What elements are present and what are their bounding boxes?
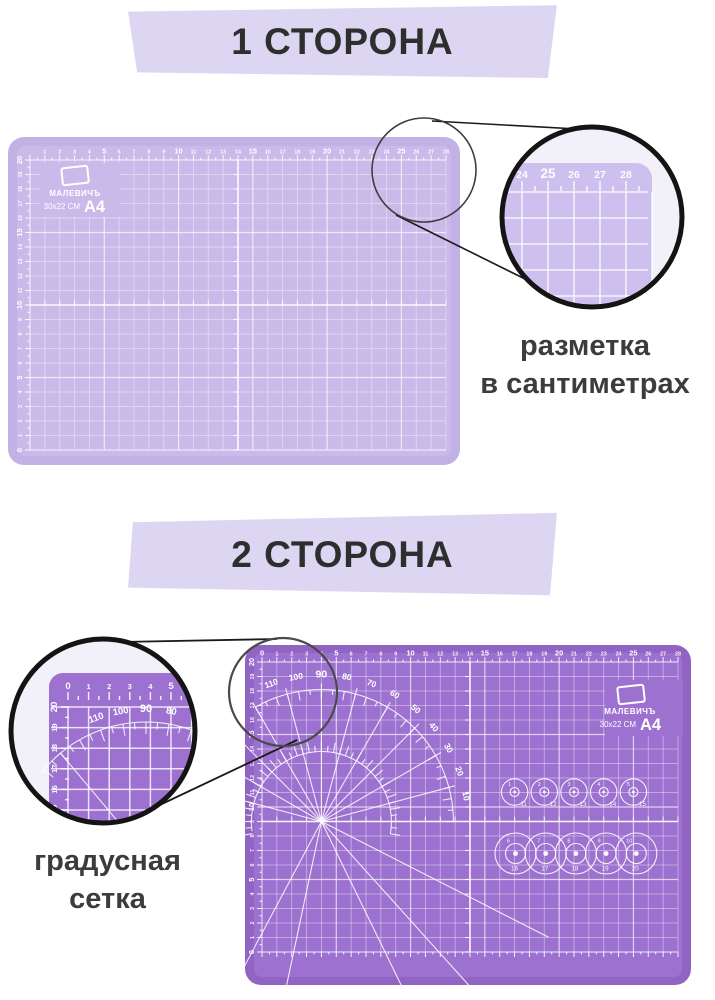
circle-label: 12 [550, 801, 558, 808]
side-2-banner: 2 СТОРОНА [125, 512, 560, 597]
ruler-number: 2 [290, 652, 293, 658]
ruler-number: 18 [250, 688, 256, 694]
lens-ruler-number: 24 [516, 169, 528, 181]
mat-side-2: 110100908070605040302010 111212313414515… [176, 645, 691, 1000]
ruler-number: 9 [394, 652, 397, 658]
ruler-number: 14 [235, 150, 241, 156]
target-dot [602, 791, 605, 794]
target-dot [513, 791, 516, 794]
circle-label: 13 [579, 801, 587, 808]
protractor-tick [391, 815, 397, 816]
ruler-number: 10 [174, 147, 182, 156]
ruler-number: 17 [280, 150, 286, 156]
ruler-number: 20 [247, 658, 256, 666]
ruler-number: 28 [675, 652, 681, 658]
caption-line: градусная [0, 842, 215, 880]
caption-line: разметка [450, 327, 715, 365]
circle-label: 16 [511, 866, 519, 873]
ruler-number: 23 [601, 652, 607, 658]
ruler-number: 9 [18, 318, 24, 321]
ruler-number: 21 [571, 652, 577, 658]
ruler-number: 26 [645, 652, 651, 658]
lens-ruler-number: 25 [540, 166, 556, 181]
lens-ruler-number: 26 [568, 169, 580, 181]
circle-inner-number: 6 [507, 839, 510, 845]
ruler-number: 7 [18, 347, 24, 350]
ruler-number: 4 [18, 391, 24, 394]
ruler-number: 28 [443, 150, 449, 156]
ruler-number: 21 [339, 150, 345, 156]
target-dot [513, 851, 518, 856]
ruler-number: 13 [18, 259, 24, 265]
ruler-number: 15 [15, 228, 24, 236]
ruler-number: 11 [191, 150, 197, 156]
ruler-number: 13 [220, 150, 226, 156]
ruler-number: 12 [205, 150, 211, 156]
ruler-number: 24 [384, 150, 390, 156]
lens2-content: 0123452019181716151101009080 [41, 673, 229, 855]
ruler-number: 16 [497, 652, 503, 658]
circle-label: 11 [520, 801, 527, 808]
mat1-format: А4 [84, 198, 106, 216]
degree-label: 10 [460, 790, 472, 801]
ruler-number: 6 [350, 652, 353, 658]
ruler-number: 11 [18, 288, 24, 294]
caption-degree-grid: градусная сетка [0, 842, 215, 918]
ruler-number: 11 [423, 652, 429, 658]
ruler-number: 12 [437, 652, 443, 658]
ruler-number: 10 [247, 803, 256, 811]
protractor-tick [207, 740, 213, 750]
caption-cm-markings: разметка в сантиметрах [450, 327, 715, 403]
circle-inner-number: 10 [626, 839, 632, 845]
circle-label: 19 [602, 866, 610, 873]
ruler-number: 17 [512, 652, 518, 658]
ruler-number: 20 [323, 147, 331, 156]
ruler-number: 27 [660, 652, 666, 658]
ruler-number: 15 [249, 147, 257, 156]
ruler-number: 0 [247, 950, 256, 954]
protractor-tick [134, 723, 135, 730]
lens-ruler-number: 20 [49, 702, 60, 713]
ruler-number: 5 [15, 375, 24, 379]
caption-line: сетка [0, 880, 215, 918]
ruler-number: 0 [15, 448, 24, 452]
mat1-brand: МАЛЕВИЧЪ [49, 189, 101, 198]
ruler-number: 2 [58, 150, 61, 156]
ruler-number: 19 [250, 674, 256, 680]
target-dot [574, 851, 579, 856]
protractor-tick [328, 746, 329, 752]
target-dot [573, 791, 576, 794]
lens-ruler-number: 17 [50, 765, 59, 773]
ruler-number: 1 [250, 936, 256, 939]
circle-label: 15 [639, 801, 647, 808]
ruler-number: 12 [250, 775, 256, 781]
ruler-number: 5 [247, 877, 256, 881]
ruler-number: 14 [18, 244, 24, 250]
ruler-number: 1 [43, 150, 46, 156]
circle-inner-number: 5 [627, 782, 630, 788]
ruler-number: 6 [250, 864, 256, 867]
ruler-number: 8 [250, 835, 256, 838]
mat2-format: А4 [640, 716, 662, 734]
ruler-number: 8 [379, 652, 382, 658]
protractor-tick [315, 746, 316, 752]
ruler-number: 20 [15, 156, 24, 164]
lens1-content: 2425262728 [470, 163, 652, 348]
circle-inner-number: 9 [598, 839, 601, 845]
protractor-tick [246, 815, 252, 816]
ruler-number: 25 [397, 147, 405, 156]
side-1-banner: 1 СТОРОНА [125, 2, 560, 82]
ruler-number: 14 [250, 746, 256, 752]
ruler-number: 8 [147, 150, 150, 156]
ruler-number: 19 [18, 172, 24, 178]
ruler-number: 19 [541, 652, 547, 658]
caption-line: в сантиметрах [450, 365, 715, 403]
ruler-number: 13 [452, 652, 458, 658]
ruler-number: 2 [18, 420, 24, 423]
ruler-number: 27 [428, 150, 434, 156]
ruler-number: 24 [616, 652, 622, 658]
ruler-number: 1 [275, 652, 278, 658]
ruler-number: 8 [18, 333, 24, 336]
circle-inner-number: 4 [597, 782, 600, 788]
mat-side-1: 1234567891011121314151617181920212223242… [8, 137, 460, 465]
ruler-number: 18 [18, 186, 24, 192]
lens-ruler-number: 3 [128, 682, 132, 691]
lens-degree-label: 90 [140, 703, 152, 715]
ruler-number: 10 [15, 301, 24, 309]
lens-ruler-number: 0 [65, 681, 70, 692]
circle-inner-number: 3 [568, 782, 571, 788]
ruler-number: 0 [260, 649, 264, 658]
circle-label: 17 [541, 866, 549, 873]
circle-label: 18 [571, 866, 579, 873]
ruler-number: 18 [526, 652, 532, 658]
ruler-number: 16 [265, 150, 271, 156]
circle-label: 14 [609, 801, 617, 808]
ruler-number: 17 [250, 703, 256, 709]
lens-degree-label: 80 [165, 705, 177, 718]
ruler-number: 19 [309, 150, 315, 156]
target-dot [543, 851, 548, 856]
target-dot [634, 851, 639, 856]
ruler-number: 12 [18, 273, 24, 279]
ruler-number: 15 [481, 649, 489, 658]
ruler-number: 17 [18, 201, 24, 207]
ruler-number: 18 [294, 150, 300, 156]
ruler-number: 7 [364, 652, 367, 658]
ruler-number: 6 [118, 150, 121, 156]
ruler-number: 5 [102, 147, 106, 156]
mat1-size: 30x22 СМ [44, 202, 81, 211]
circle-inner-number: 7 [537, 839, 540, 845]
target-dot [604, 851, 609, 856]
target-dot [632, 791, 635, 794]
ruler-number: 25 [629, 649, 637, 658]
ruler-number: 9 [162, 150, 165, 156]
ruler-number: 20 [555, 649, 563, 658]
circle-inner-number: 1 [508, 782, 511, 788]
circle-inner-number: 2 [538, 782, 541, 788]
lens-ruler-number: 27 [594, 169, 606, 181]
lens-ruler-number: 16 [50, 785, 59, 793]
ruler-number: 3 [250, 907, 256, 910]
ruler-number: 26 [413, 150, 419, 156]
ruler-number: 7 [250, 849, 256, 852]
ruler-number: 22 [586, 652, 592, 658]
degree-label: 80 [341, 671, 352, 683]
lens-ruler-number: 5 [168, 681, 174, 692]
ruler-number: 2 [250, 922, 256, 925]
ruler-number: 3 [73, 150, 76, 156]
circle-inner-number: 8 [567, 839, 570, 845]
ruler-number: 4 [88, 150, 91, 156]
lens-ruler-number: 28 [620, 169, 632, 181]
ruler-number: 1 [18, 434, 24, 437]
protractor-tick [157, 723, 158, 730]
side-1-banner-label: 1 СТОРОНА [231, 21, 454, 63]
target-dot [543, 791, 546, 794]
ruler-number: 6 [18, 362, 24, 365]
ruler-number: 16 [250, 717, 256, 723]
callout-line-top [121, 639, 277, 642]
ruler-number: 11 [250, 790, 256, 796]
protractor-tick [391, 828, 397, 829]
ruler-number: 14 [467, 652, 473, 658]
side-2-banner-label: 2 СТОРОНА [231, 534, 454, 576]
protractor-tick [199, 734, 202, 740]
ruler-number: 7 [132, 150, 135, 156]
circle-label: 20 [632, 866, 640, 873]
ruler-number: 4 [250, 893, 256, 896]
mat2-size: 30x22 СМ [600, 720, 637, 729]
ruler-number: 3 [18, 405, 24, 408]
ruler-number: 5 [334, 649, 338, 658]
lens-ruler-number: 19 [50, 723, 59, 731]
lens-ruler-number: 2 [107, 682, 111, 691]
ruler-number: 16 [18, 215, 24, 221]
mat2-brand: МАЛЕВИЧЪ [604, 707, 656, 716]
ruler-number: 3 [305, 652, 308, 658]
ruler-number: 9 [250, 820, 256, 823]
degree-label: 90 [316, 669, 328, 681]
protractor-tick [246, 828, 252, 829]
product-infographic: 1234567891011121314151617181920212223242… [0, 0, 715, 1000]
ruler-number: 22 [354, 150, 360, 156]
ruler-number: 10 [406, 649, 414, 658]
lens-ruler-number: 18 [50, 744, 59, 752]
